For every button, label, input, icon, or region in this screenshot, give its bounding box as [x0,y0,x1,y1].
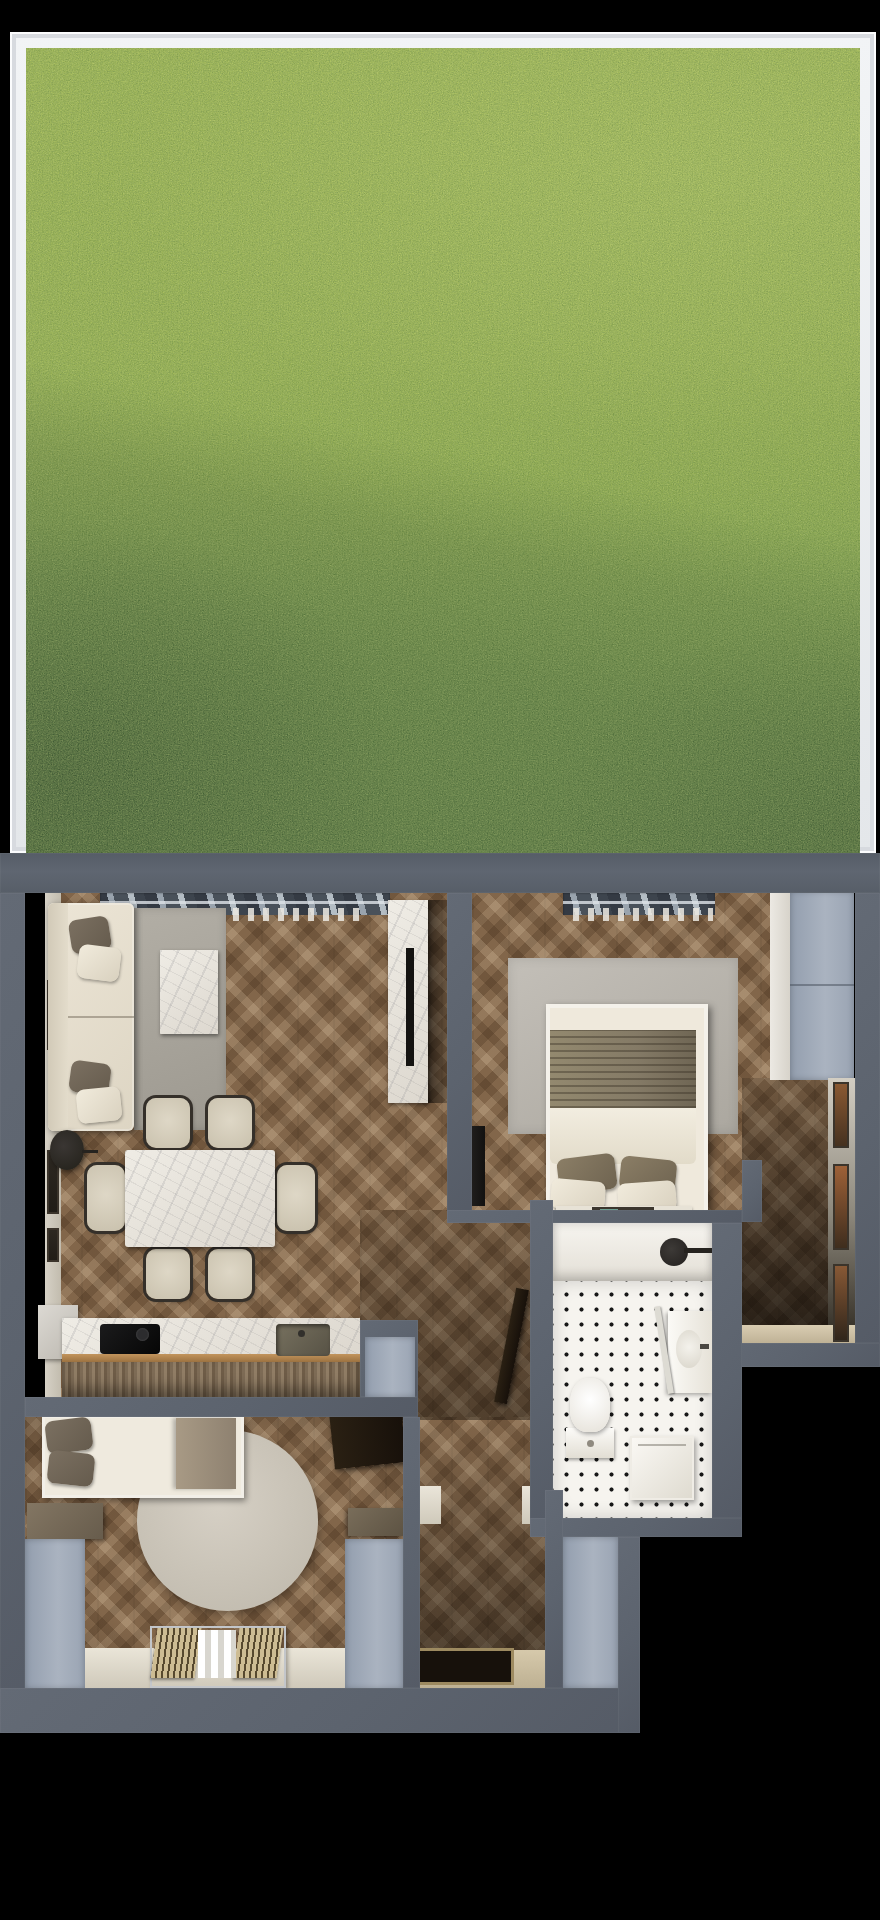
shower-arm [684,1248,712,1253]
bed2-pillow-bottom [46,1450,95,1488]
corridor-frame-2 [833,1164,849,1250]
floor-lamp-arm [82,1150,98,1153]
toilet-flush-button [587,1440,594,1447]
wardrobe1-seam [790,984,854,986]
hall-door-jamb-left [419,1486,441,1524]
corridor-frame-3 [833,1264,849,1342]
wall-bedroom2-right [403,1417,420,1688]
wall-kitchen-band [25,1397,418,1417]
kitchen-tall-unit-panel [365,1337,415,1397]
bed1-throw-blanket [550,1030,696,1108]
wall-bottom [0,1688,645,1733]
coffee-table [160,950,218,1034]
entry-door-recess [410,1648,514,1685]
bedroom2-side-cabinet [27,1503,103,1539]
dining-table [125,1150,275,1247]
vanity-faucet [700,1344,709,1349]
sink-faucet [298,1330,305,1337]
bench-slats-left [150,1628,201,1678]
bed1-duvet [550,1108,696,1164]
floor-plan-render [0,0,880,1920]
sofa-pillow-cream-bottom [75,1086,122,1124]
wall-art-frame-3 [47,1228,59,1262]
bedroom2-wardrobe-left [25,1539,85,1689]
cooking-pot [136,1328,149,1341]
wall-corridor-nub [742,1160,762,1222]
vanity-basin [676,1330,702,1368]
cabinet-side-shadow [428,900,447,1103]
wall-right [855,893,880,1343]
wall-bathroom-right [712,1223,742,1518]
sofa-backrest [48,903,68,1131]
bedroom2-wardrobe-right [345,1539,403,1689]
floor-lamp [50,1130,84,1170]
mask-bottom-right [640,1537,856,1920]
sofa-pillow-cream-top [76,944,122,983]
dining-chair-3 [146,1249,190,1299]
bedroom1-window-blinds [573,908,713,921]
sofa-cushion-seam [68,1016,134,1018]
bench-slats-right [232,1628,283,1678]
dining-chair-6 [277,1165,315,1231]
kitchen-cabinet-front [62,1362,360,1398]
bedroom2-door-leaf [329,1408,406,1469]
dining-chair-1 [146,1098,190,1148]
dining-chair-2 [208,1098,252,1148]
wall-below-bathroom [618,1537,640,1733]
bed2-blanket [176,1418,236,1489]
cooktop [100,1324,160,1354]
living-window-sill-line [100,901,390,904]
bedroom2-desk [348,1508,403,1536]
bed2-pillow-top [44,1416,94,1454]
kitchen-sink [276,1324,330,1356]
toilet-bowl [570,1378,610,1432]
bedroom1-window-sill-line [563,901,715,904]
dining-chair-5 [87,1165,125,1231]
wall-top-band [0,853,880,893]
dining-chair-4 [208,1249,252,1299]
lawn-grass-texture [26,48,860,853]
wall-bathroom-left [530,1200,553,1537]
wall-living-bedroom1 [447,893,472,1222]
corridor-frame-1 [833,1082,849,1148]
wall-left [0,893,25,1733]
wall-hall-right [545,1490,563,1688]
entry-closet-panel [563,1537,618,1688]
wall-bedroom1-south [447,1210,742,1223]
washer-lid-line [638,1444,686,1446]
bench-cloth [198,1630,236,1678]
marble-cabinet-groove [406,948,414,1066]
wardrobe1-side [770,891,790,1080]
